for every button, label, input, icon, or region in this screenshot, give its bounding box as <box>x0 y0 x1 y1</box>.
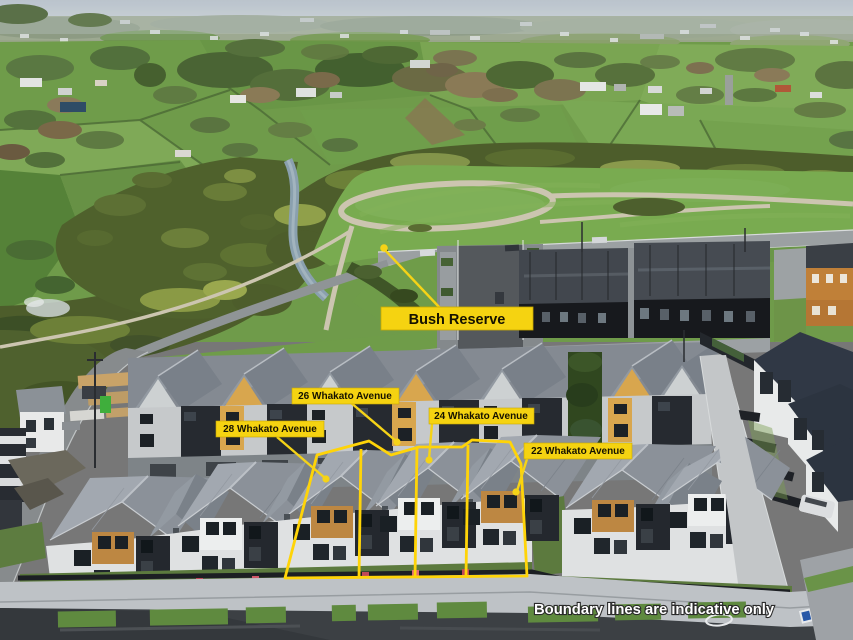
svg-text:Boundary lines are indicative: Boundary lines are indicative only <box>534 602 775 618</box>
svg-text:Bush Reserve: Bush Reserve <box>409 312 506 328</box>
svg-text:28 Whakato Avenue: 28 Whakato Avenue <box>223 424 317 435</box>
svg-text:24 Whakato Avenue: 24 Whakato Avenue <box>434 411 528 422</box>
svg-text:22 Whakato Avenue: 22 Whakato Avenue <box>531 446 625 457</box>
svg-text:26 Whakato Avenue: 26 Whakato Avenue <box>298 391 392 402</box>
